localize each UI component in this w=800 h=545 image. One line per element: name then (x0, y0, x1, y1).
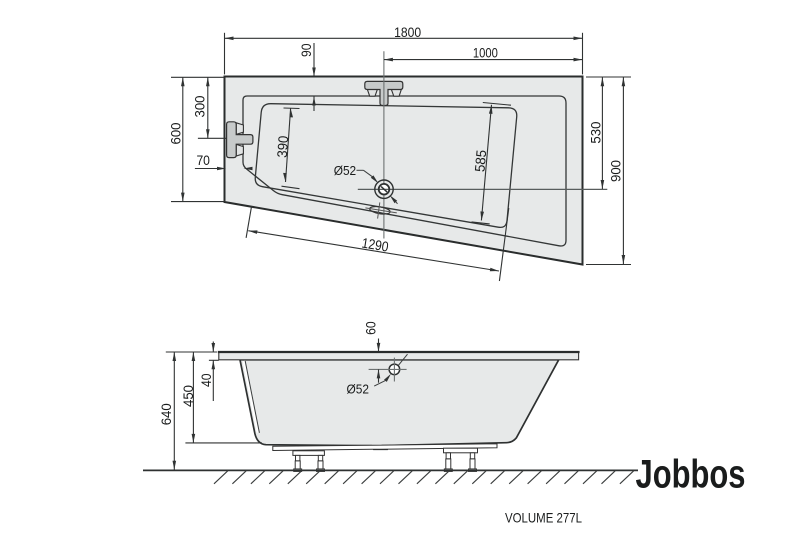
svg-text:40: 40 (198, 373, 214, 387)
svg-text:Ø52: Ø52 (347, 383, 370, 397)
svg-text:900: 900 (607, 160, 623, 182)
svg-text:VOLUME 277L: VOLUME 277L (505, 510, 582, 526)
svg-text:Ø52: Ø52 (334, 164, 357, 178)
svg-text:390: 390 (274, 135, 292, 158)
svg-text:530: 530 (587, 121, 603, 143)
svg-text:60: 60 (362, 321, 378, 335)
svg-text:600: 600 (168, 122, 184, 144)
svg-text:90: 90 (298, 43, 314, 57)
svg-text:1800: 1800 (394, 24, 421, 40)
svg-text:70: 70 (196, 152, 210, 168)
svg-text:640: 640 (158, 403, 174, 425)
svg-text:585: 585 (471, 149, 489, 173)
svg-text:300: 300 (191, 95, 207, 117)
svg-text:Jobbos: Jobbos (636, 453, 746, 497)
svg-text:450: 450 (180, 385, 196, 407)
svg-text:1000: 1000 (473, 45, 498, 61)
svg-text:1290: 1290 (361, 235, 390, 255)
